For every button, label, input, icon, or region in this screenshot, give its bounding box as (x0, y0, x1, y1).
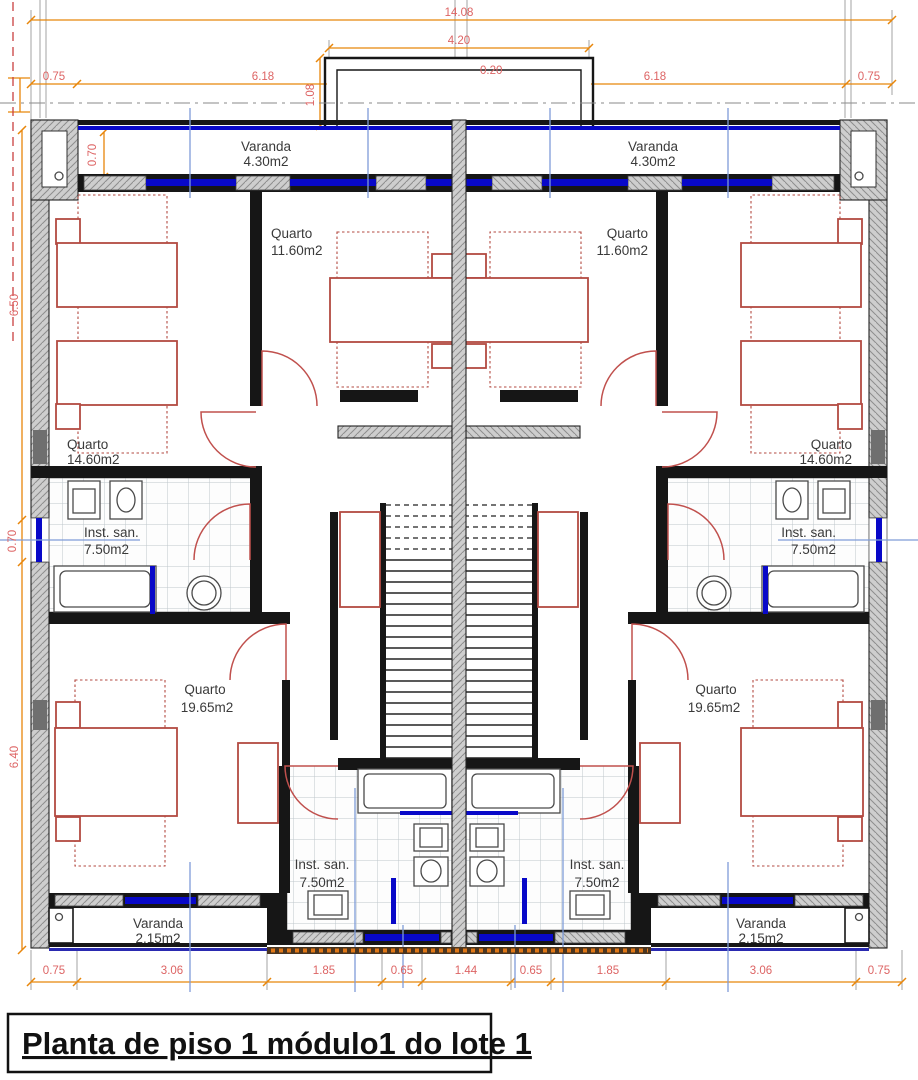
area-quarto-mid-right: 11.60m2 (596, 243, 648, 258)
dwelling-unit-left (0, 108, 459, 992)
dim-top-wall: 0.20 (480, 65, 502, 77)
shower-screen (150, 566, 155, 614)
area-varanda-top-left: 4.30m2 (243, 154, 288, 169)
window-top-2 (290, 179, 376, 186)
floor-plan-canvas: 14.08 4.20 0.20 0.75 6.18 6.18 0.75 1.08… (0, 0, 918, 1080)
bed (330, 278, 457, 342)
dim-varanda-depth: 0.70 (87, 144, 99, 166)
label-bath-mid-left: Inst. san. (84, 525, 139, 540)
window-bath (365, 934, 439, 941)
area-quarto-bottom-right: 19.65m2 (688, 700, 741, 715)
label-quarto-top-left: Quarto (67, 437, 108, 452)
area-varanda-top-right: 4.30m2 (630, 154, 675, 169)
dim-right-span: 6.18 (644, 71, 666, 83)
dim-bottom-8: 3.06 (750, 965, 772, 977)
dim-bottom-2: 3.06 (161, 965, 183, 977)
dim-bottom-6: 0.65 (520, 965, 542, 977)
dim-top-overall: 14.08 (445, 7, 474, 19)
staircase (340, 505, 452, 758)
label-varanda-bottom-left: Varanda (133, 916, 184, 931)
dim-left-upper: 6.50 (9, 294, 21, 316)
area-bath-bottom-left: 7.50m2 (299, 875, 344, 890)
chimney-block (31, 120, 78, 200)
dim-left-lower: 6.40 (9, 746, 21, 768)
wardrobe-stair (340, 512, 380, 607)
area-bath-mid-right: 7.50m2 (791, 542, 836, 557)
dim-left-eave: 0.75 (43, 71, 65, 83)
quarto-mid-furniture (330, 232, 457, 387)
varanda-pillar (49, 908, 73, 943)
area-bath-bottom-right: 7.50m2 (574, 875, 619, 890)
area-varanda-bottom-left: 2.15m2 (135, 931, 180, 946)
area-varanda-bottom-right: 2.15m2 (738, 931, 783, 946)
title-block: Planta de piso 1 módulo1 do lote 1 (8, 1014, 532, 1072)
bed (57, 341, 177, 405)
area-quarto-mid-left: 11.60m2 (271, 243, 323, 258)
label-bath-bottom-left: Inst. san. (295, 857, 350, 872)
label-quarto-bottom-left: Quarto (184, 682, 225, 697)
area-bath-mid-left: 7.50m2 (84, 542, 129, 557)
window-bottom-quarto (125, 897, 196, 904)
dim-bottom-9: 0.75 (868, 965, 890, 977)
party-wall (452, 120, 466, 948)
bath-bottom-window-band (287, 930, 455, 945)
label-varanda-top-left: Varanda (241, 139, 292, 154)
dim-bottom-1: 0.75 (43, 965, 65, 977)
wardrobe (238, 743, 278, 823)
label-bath-bottom-right: Inst. san. (570, 857, 625, 872)
label-quarto-top-right: Quarto (811, 437, 852, 452)
dim-left-window: 0.70 (7, 530, 19, 552)
quarto-bottom-furniture (55, 680, 278, 866)
drawing-title: Planta de piso 1 módulo1 do lote 1 (22, 1026, 532, 1061)
shower-screen (391, 878, 396, 924)
label-quarto-mid-left: Quarto (271, 226, 312, 241)
dim-protrusion-depth: 1.08 (305, 84, 317, 106)
label-varanda-top-right: Varanda (628, 139, 679, 154)
area-quarto-top-left: 14.60m2 (67, 452, 120, 467)
window-top-3 (426, 179, 452, 186)
floor-plan-page: 14.08 4.20 0.20 0.75 6.18 6.18 0.75 1.08… (0, 0, 918, 1080)
window-top-1 (146, 179, 236, 186)
bottom-insulation-strip (267, 947, 651, 954)
label-quarto-bottom-right: Quarto (695, 682, 736, 697)
bed (57, 243, 177, 307)
quarto-top-furniture (56, 195, 177, 453)
area-quarto-top-right: 14.60m2 (799, 452, 852, 467)
varanda-rail-glass (78, 126, 459, 130)
label-quarto-mid-right: Quarto (607, 226, 648, 241)
dwelling-unit-right (459, 108, 918, 992)
dim-bottom-4: 0.65 (391, 965, 413, 977)
stair-bulkhead-outline (325, 58, 593, 128)
exterior-wall-left (31, 120, 49, 948)
area-quarto-bottom-left: 19.65m2 (181, 700, 234, 715)
dim-bottom-7: 1.85 (597, 965, 619, 977)
dim-left-span: 6.18 (252, 71, 274, 83)
dim-top-protrusion: 4.20 (448, 35, 470, 47)
dim-right-eave: 0.75 (858, 71, 880, 83)
dim-bottom-3: 1.85 (313, 965, 335, 977)
bed (55, 728, 177, 816)
dim-bottom-5: 1.44 (455, 965, 478, 977)
label-varanda-bottom-right: Varanda (736, 916, 787, 931)
label-bath-mid-right: Inst. san. (781, 525, 836, 540)
